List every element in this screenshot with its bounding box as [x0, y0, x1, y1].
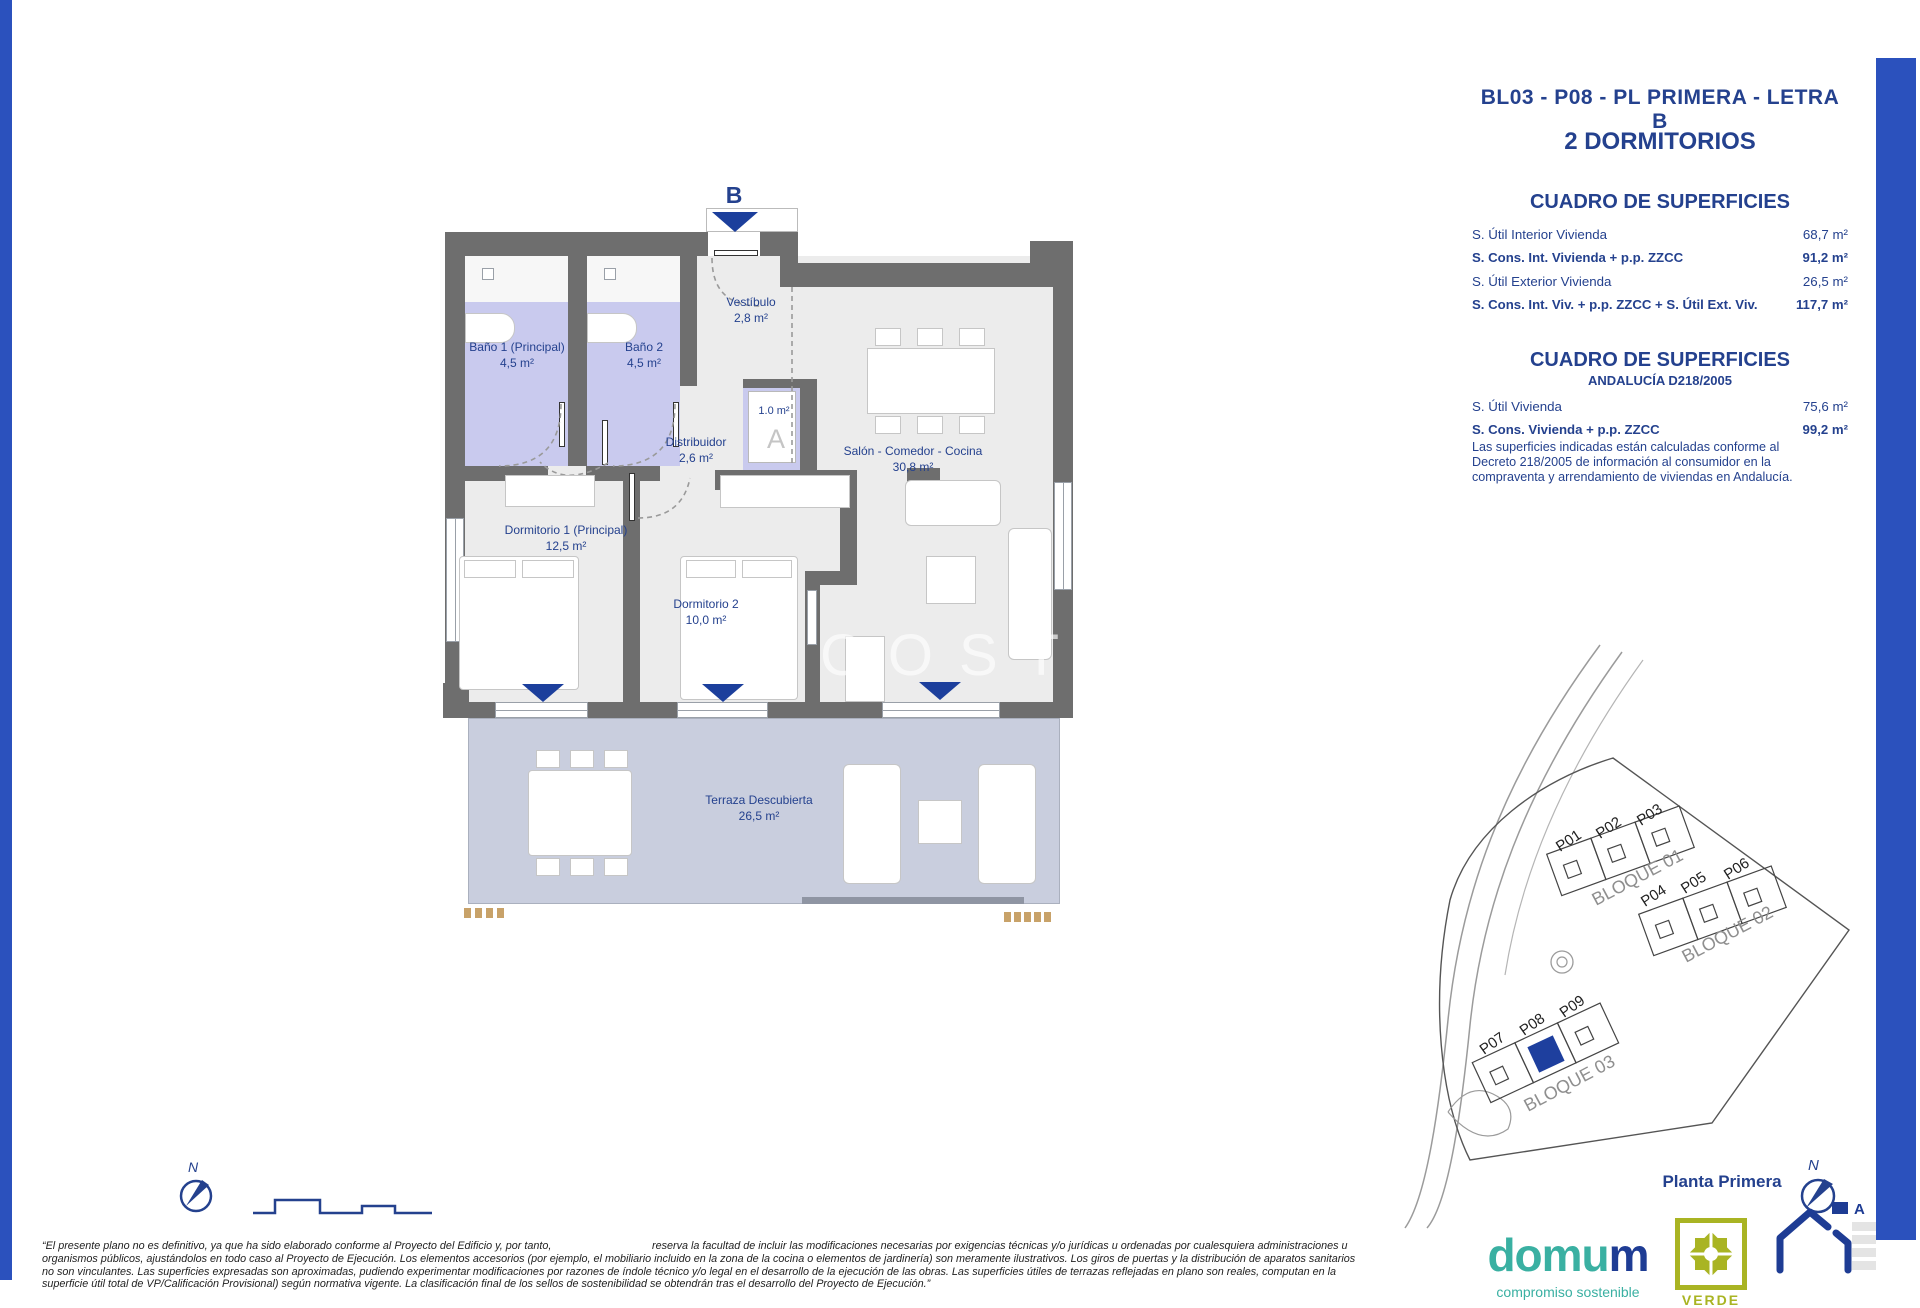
surface-label: S. Útil Vivienda — [1472, 399, 1562, 414]
window-marker — [522, 684, 564, 702]
chair — [536, 858, 560, 876]
lounger — [843, 764, 901, 884]
room-label-salon: Salón - Comedor - Cocina30,8 m² — [844, 444, 983, 475]
unit-label: P02 — [1593, 814, 1625, 843]
chair — [604, 858, 628, 876]
unit-label: P09 — [1557, 992, 1589, 1021]
surface-value: 99,2 m² — [1803, 422, 1848, 437]
disclaimer-line: organismos públicos, ajustándolos en tod… — [42, 1253, 1355, 1265]
site-plan: P01 P02 P03 P04 P05 P06 P07 P08 P09 BLOQ… — [1130, 580, 1890, 1230]
energy-label-icon: A — [1770, 1200, 1880, 1280]
chair — [917, 328, 943, 346]
coffee-table — [926, 556, 976, 604]
chair — [875, 328, 901, 346]
north-scale: N — [160, 1150, 480, 1250]
chair — [570, 858, 594, 876]
disclaimer-text: reserva la facultad de incluir las modif… — [652, 1240, 1348, 1252]
surface-value: 26,5 m² — [1803, 274, 1848, 289]
surfaces-subheading-2: ANDALUCÍA D218/2005 — [1472, 373, 1848, 388]
room-label-dormitorio2: Dormitorio 210,0 m² — [673, 597, 738, 628]
surface-row: S. Cons. Int. Viv. + p.p. ZZCC + S. Útil… — [1472, 297, 1848, 312]
pillow — [686, 560, 736, 578]
surface-label: S. Cons. Int. Vivienda + p.p. ZZCC — [1472, 250, 1683, 265]
unit-subtitle: 2 DORMITORIOS — [1472, 128, 1848, 156]
chair — [917, 416, 943, 434]
surface-label: S. Útil Interior Vivienda — [1472, 227, 1607, 242]
disclaimer-text: “El presente plano no es definitivo, ya … — [42, 1240, 551, 1252]
entrance-label: B — [726, 182, 743, 209]
lounger — [978, 764, 1036, 884]
surface-row: S. Útil Interior Vivienda 68,7 m² — [1472, 227, 1848, 242]
hatch-tick — [464, 908, 471, 918]
room-label-distribuidor: Distribuidor2,6 m² — [666, 435, 727, 466]
chair — [570, 750, 594, 768]
unit-title: BL03 - P08 - PL PRIMERA - LETRA B — [1472, 86, 1848, 134]
decreto-note: Las superficies indicadas están calculad… — [1472, 440, 1822, 485]
plan-sheet: { "header": { "title": "BL03 - P08 - PL … — [0, 0, 1920, 1280]
verde-leaf-icon — [1680, 1223, 1742, 1285]
domum-tagline: compromiso sostenible — [1478, 1284, 1658, 1300]
surface-value: 91,2 m² — [1803, 250, 1848, 265]
unit-label: P01 — [1553, 827, 1585, 856]
pillow — [522, 560, 574, 578]
hatch-tick — [486, 908, 493, 918]
surface-row: S. Útil Exterior Vivienda 26,5 m² — [1472, 274, 1848, 289]
surface-value: 68,7 m² — [1803, 227, 1848, 242]
dining-table — [867, 348, 995, 414]
bathroom1-vanity — [465, 313, 515, 343]
block-label: BLOQUE 01 — [1588, 845, 1686, 910]
left-accent-bar — [0, 0, 12, 1280]
north-label: N — [188, 1159, 199, 1175]
unit-label: P07 — [1477, 1029, 1509, 1058]
unit-label: P03 — [1634, 801, 1666, 830]
verde-logo — [1675, 1218, 1747, 1290]
unit-label: P08 — [1517, 1010, 1549, 1039]
svg-text:N: N — [1808, 1157, 1819, 1174]
surface-label: S. Útil Exterior Vivienda — [1472, 274, 1611, 289]
room-label-vestibulo: Vestíbulo2,8 m² — [726, 295, 775, 326]
chair — [536, 750, 560, 768]
closet-area-label: 1.0 m² — [758, 404, 789, 418]
chair — [875, 416, 901, 434]
surface-value: 117,7 m² — [1796, 297, 1848, 312]
pillow — [742, 560, 792, 578]
siteplan-caption: Planta Primera — [1662, 1172, 1781, 1192]
surface-row: S. Cons. Vivienda + p.p. ZZCC 99,2 m² — [1472, 422, 1848, 437]
disclaimer-line: no son vinculantes. Las superficies expr… — [42, 1266, 1336, 1278]
sofa — [905, 480, 1001, 526]
chair — [959, 416, 985, 434]
watermark: COSTA — [820, 622, 1146, 689]
hatch-tick — [1044, 912, 1051, 922]
unit-label: P05 — [1678, 869, 1710, 898]
verde-label: VERDE — [1675, 1292, 1747, 1308]
pillow — [464, 560, 516, 578]
room-label-dormitorio1: Dormitorio 1 (Principal)12,5 m² — [505, 523, 628, 554]
energy-letter: A — [1854, 1201, 1865, 1218]
unit-label: P04 — [1638, 882, 1670, 911]
terrace-side-table — [918, 800, 962, 844]
window-marker — [919, 682, 961, 700]
room-label-terraza: Terraza Descubierta26,5 m² — [705, 793, 812, 824]
room-label-bano1: Baño 1 (Principal)4,5 m² — [469, 340, 564, 371]
hatch-tick — [1034, 912, 1041, 922]
surface-value: 75,6 m² — [1803, 399, 1848, 414]
hatch-tick — [1024, 912, 1031, 922]
surface-row: S. Cons. Int. Vivienda + p.p. ZZCC 91,2 … — [1472, 250, 1848, 265]
unit-label: P06 — [1721, 855, 1753, 884]
room-label-bano2: Baño 24,5 m² — [625, 340, 663, 371]
wardrobe-dorm2 — [720, 475, 850, 508]
surfaces-heading-2: CUADRO DE SUPERFICIES — [1472, 349, 1848, 372]
selected-unit-marker — [1527, 1035, 1564, 1072]
surface-label: S. Cons. Int. Viv. + p.p. ZZCC + S. Útil… — [1472, 297, 1758, 312]
window-marker — [702, 684, 744, 702]
wardrobe — [505, 475, 595, 507]
hatch-tick — [475, 908, 482, 918]
hatch-tick — [1014, 912, 1021, 922]
terrace-table — [528, 770, 632, 856]
entrance-marker — [712, 212, 758, 232]
surface-label: S. Cons. Vivienda + p.p. ZZCC — [1472, 422, 1660, 437]
chair — [604, 750, 628, 768]
domum-logo-navy: m — [1609, 1229, 1649, 1281]
disclaimer-line: “El presente plano no es definitivo, ya … — [42, 1240, 551, 1252]
surface-row: S. Útil Vivienda 75,6 m² — [1472, 399, 1848, 414]
domum-logo-teal: domu — [1487, 1229, 1608, 1281]
closet-letter: A — [767, 424, 785, 455]
block-label: BLOQUE 02 — [1678, 902, 1776, 967]
hatch-tick — [1004, 912, 1011, 922]
domum-logo: domum compromiso sostenible — [1478, 1228, 1658, 1300]
bathroom2-vanity — [587, 313, 637, 343]
hatch-tick — [497, 908, 504, 918]
chair — [959, 328, 985, 346]
scale-bar — [253, 1200, 432, 1213]
surfaces-heading-1: CUADRO DE SUPERFICIES — [1472, 191, 1848, 214]
